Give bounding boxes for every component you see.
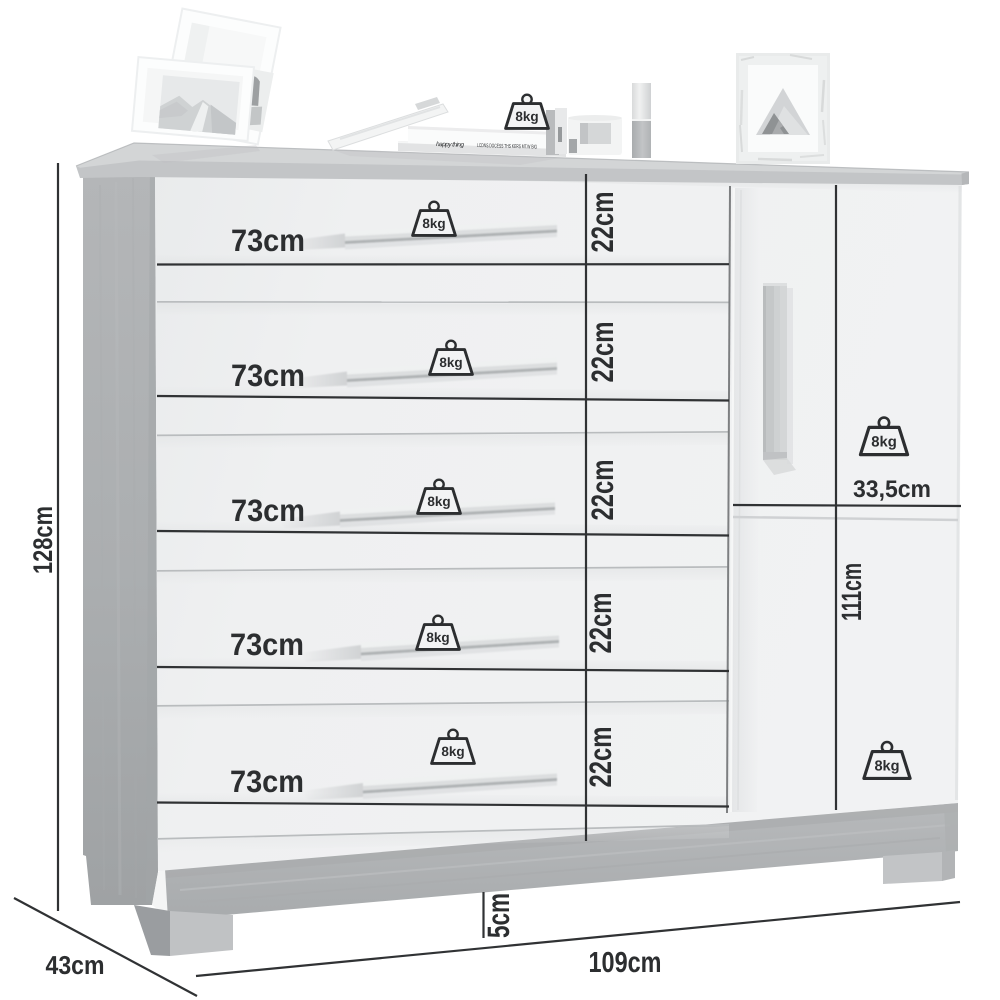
svg-text:73cm: 73cm (231, 493, 305, 528)
svg-text:happy thing: happy thing (436, 141, 465, 149)
svg-text:73cm: 73cm (231, 223, 305, 258)
svg-text:5cm: 5cm (481, 893, 516, 938)
svg-text:22cm: 22cm (583, 593, 618, 654)
svg-text:22cm: 22cm (585, 322, 620, 383)
svg-text:73cm: 73cm (230, 764, 304, 799)
svg-text:73cm: 73cm (230, 627, 304, 662)
svg-text:73cm: 73cm (231, 358, 305, 393)
svg-text:128cm: 128cm (28, 506, 58, 574)
svg-text:33,5cm: 33,5cm (853, 476, 931, 503)
svg-text:109cm: 109cm (589, 947, 662, 979)
svg-text:43cm: 43cm (46, 950, 105, 980)
svg-text:22cm: 22cm (583, 727, 618, 788)
svg-text:22cm: 22cm (585, 192, 620, 253)
svg-text:22cm: 22cm (585, 460, 620, 521)
svg-text:111cm: 111cm (836, 563, 867, 621)
